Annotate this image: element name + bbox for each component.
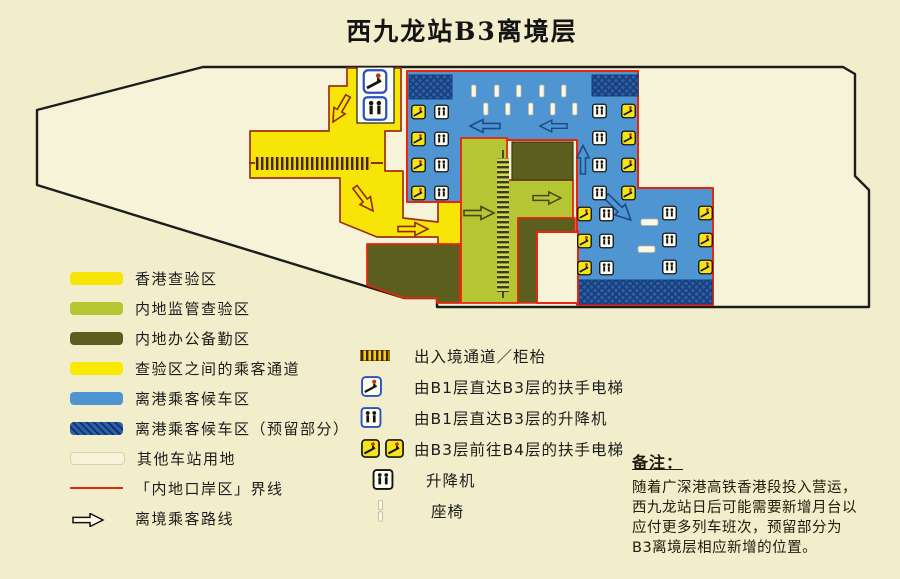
waiting-reserved-swatch <box>70 422 123 435</box>
note-heading: 备注： <box>632 449 890 473</box>
legend-label: 由B1层直达B3层的扶手电梯 <box>414 376 624 398</box>
waiting-area-swatch <box>70 392 123 405</box>
legend-item-hk-inspection: 香港查验区 <box>70 263 350 293</box>
lift-b1-b3-icon <box>364 97 387 120</box>
legend-item-escalator-b1b3: 由B1层直达B3层的扶手电梯 <box>360 371 624 402</box>
legend-item-other-land: 其他车站用地 <box>70 443 350 473</box>
port-boundary-line <box>70 487 123 489</box>
mainland-office-swatch <box>70 332 123 345</box>
legend-label: 内地监管查验区 <box>135 298 251 319</box>
legend-label: 离港乘客候车区（预留部分） <box>135 418 350 439</box>
legend-item-escalator-b3b4: 由B3层前往B4层的扶手电梯 <box>360 433 624 464</box>
legend-item-lift-b1b3: 由B1层直达B3层的升降机 <box>360 402 624 433</box>
legend-item-corridor: 查验区之间的乘客通道 <box>70 353 350 383</box>
legend-item-mainland-inspection: 内地监管查验区 <box>70 293 350 323</box>
escalator-blue-icon <box>360 376 406 397</box>
mainland-inspection-swatch <box>70 302 123 315</box>
b1-b3-access-panel <box>357 67 394 123</box>
legend-label: 由B3层前往B4层的扶手电梯 <box>414 438 624 460</box>
legend-label: 由B1层直达B3层的升降机 <box>414 407 608 429</box>
counter-stripes-icon <box>360 350 406 361</box>
route-arrow-swatch <box>70 512 123 525</box>
note-line: B3离境层相应新增的位置。 <box>632 538 890 558</box>
legend-label: 内地办公备勤区 <box>135 328 251 349</box>
legend-label: 查验区之间的乘客通道 <box>135 358 300 379</box>
lift-blue-icon <box>360 407 406 428</box>
other-station-land <box>537 232 578 303</box>
hk-inspection-swatch <box>70 272 123 285</box>
note-line: 随着广深港高铁香港段投入营运， <box>632 478 890 498</box>
legend-symbols: 出入境通道／柜枱 由B1层直达B3层的扶手电梯 由B1层直达B3层的升降机 由B… <box>360 340 624 526</box>
legend-label: 出入境通道／柜枱 <box>414 345 546 367</box>
legend-label: 离港乘客候车区 <box>135 388 251 409</box>
legend-item-waiting: 离港乘客候车区 <box>70 383 350 413</box>
escalator-yellow-icon <box>360 439 406 458</box>
legend-areas: 香港查验区 内地监管查验区 内地办公备勤区 查验区之间的乘客通道 离港乘客候车区… <box>70 263 350 533</box>
legend-label: 座椅 <box>431 500 464 522</box>
legend-label: 香港查验区 <box>135 268 218 289</box>
escalator-b1-b3-icon <box>364 70 387 93</box>
legend-item-mainland-office: 内地办公备勤区 <box>70 323 350 353</box>
note-line: 应付更多列车班次，预留部分为 <box>632 518 890 538</box>
legend-item-counters: 出入境通道／柜枱 <box>360 340 624 371</box>
legend-item-seat: 座椅 <box>360 495 624 526</box>
legend-label: 其他车站用地 <box>137 448 236 469</box>
note-line: 西九龙站日后可能需要新增月台以 <box>632 498 890 518</box>
lift-black-icon <box>360 469 418 490</box>
legend-label: 离境乘客路线 <box>135 508 234 529</box>
legend-label: 升降机 <box>426 469 476 491</box>
legend-label: 「内地口岸区」界线 <box>135 478 284 499</box>
note: 备注： 随着广深港高铁香港段投入营运， 西九龙站日后可能需要新增月台以 应付更多… <box>632 449 890 558</box>
legend-item-port-boundary: 「内地口岸区」界线 <box>70 473 350 503</box>
route-arrow-icon <box>70 513 110 527</box>
legend-item-waiting-reserved: 离港乘客候车区（预留部分） <box>70 413 350 443</box>
seat-icon <box>360 500 423 522</box>
corridor-swatch <box>70 362 123 375</box>
legend-item-route: 离境乘客路线 <box>70 503 350 533</box>
other-land-swatch <box>70 452 125 465</box>
legend-item-lift: 升降机 <box>360 464 624 495</box>
